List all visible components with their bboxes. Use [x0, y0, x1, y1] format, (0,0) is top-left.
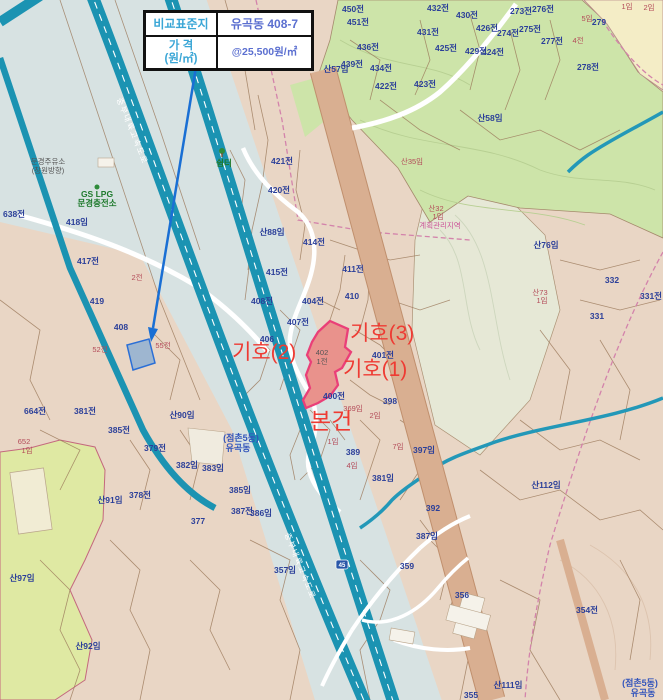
- info-table-value-standard: 유곡동 408-7: [217, 12, 312, 36]
- parcel-label: 산76임: [533, 240, 558, 250]
- parcel-label: 산90임: [169, 410, 194, 420]
- parcel-label: 402: [316, 348, 329, 357]
- parcel-label: 4임: [346, 461, 357, 470]
- parcel-label: 430전: [456, 10, 478, 20]
- parcel-label: 쉼터: [216, 158, 232, 168]
- parcel-label: 638전: [3, 209, 25, 219]
- parcel-label: 423전: [414, 79, 436, 89]
- parcel-label: 389: [346, 447, 360, 457]
- parcel-label: 386임: [250, 508, 272, 518]
- info-table-label-standard: 비교표준지: [145, 12, 217, 36]
- parcel-label: 387임: [416, 531, 438, 541]
- parcel-label: 400전: [323, 391, 345, 401]
- parcel-label: 382임: [176, 460, 198, 470]
- parcel-label: 7임: [392, 442, 403, 451]
- parcel-label: 55전: [155, 340, 170, 350]
- parcel-label: 381전: [74, 406, 96, 416]
- parcel-label: 408전: [251, 296, 273, 306]
- parcel-label: 414전: [303, 237, 325, 247]
- parcel-label: 451전: [347, 17, 369, 27]
- parcel-label: 1임: [432, 212, 443, 221]
- parcel-label: 450전: [342, 4, 364, 14]
- parcel-label: 381임: [372, 473, 394, 483]
- parcel-label: 계획관리지역: [419, 220, 460, 230]
- parcel-label: 419: [90, 296, 104, 306]
- parcel-label: 417전: [77, 256, 99, 266]
- parcel-label: 436전: [357, 42, 379, 52]
- parcel-label: 1임: [536, 296, 547, 305]
- parcel-label: 산35임: [401, 156, 423, 166]
- parcel-label: 2전: [131, 272, 142, 282]
- svg-text:45: 45: [339, 563, 346, 569]
- parcel-label: 1전: [316, 356, 327, 366]
- parcel-label: 276전: [532, 4, 554, 14]
- parcel-label: 산112임: [531, 480, 560, 490]
- parcel-label: 385임: [229, 485, 251, 495]
- parcel-label: 383임: [202, 463, 224, 473]
- parcel-label: 431전: [417, 27, 439, 37]
- info-table: 비교표준지 유곡동 408-7 가 격 (원/㎡) @25,500원/㎡: [143, 10, 314, 71]
- parcel-label: 421전: [271, 156, 293, 166]
- parcel-label: (점촌5동): [622, 677, 658, 688]
- price-label-line2: (원/㎡): [165, 53, 198, 65]
- parcel-label: 331전: [640, 291, 662, 301]
- parcel-label: 1임: [327, 437, 338, 446]
- parcel-label: 664전: [24, 406, 46, 416]
- annotation-subject: 본건: [310, 402, 352, 436]
- parcel-label: 434전: [370, 63, 392, 73]
- parcel-label: 산92임: [75, 641, 100, 651]
- parcel-label: 415전: [266, 267, 288, 277]
- parcel-label: (점촌5동): [223, 432, 259, 443]
- parcel-label: 산91임: [97, 495, 122, 505]
- parcel-label: 1임: [621, 2, 632, 11]
- parcel-label: 422전: [375, 81, 397, 91]
- info-table-label-price: 가 격 (원/㎡): [145, 36, 217, 69]
- parcel-label: 408: [114, 322, 128, 332]
- parcel-label: 426전: [476, 23, 498, 33]
- parcel-label: 52전: [92, 344, 107, 354]
- parcel-label: 359: [400, 561, 414, 571]
- parcel-label: 425전: [435, 43, 457, 53]
- parcel-label: 418임: [66, 217, 88, 227]
- parcel-label: 산97임: [9, 573, 34, 583]
- parcel-label: 277전: [541, 36, 563, 46]
- parcel-label: 274전: [497, 28, 519, 38]
- parcel-label: (창원방향): [32, 165, 65, 175]
- parcel-label: 379전: [144, 443, 166, 453]
- parcel-label: 398: [383, 396, 397, 406]
- parcel-label: 355: [464, 690, 478, 700]
- parcel-label: 385전: [108, 425, 130, 435]
- parcel-label: 420전: [268, 185, 290, 195]
- parcel-label: 407전: [287, 317, 309, 327]
- parcel-label: 산58임: [477, 113, 502, 123]
- parcel-label: 432전: [427, 3, 449, 13]
- parcel-label: 278전: [577, 62, 599, 72]
- parcel-label: 356: [455, 590, 469, 600]
- parcel-label: 652: [18, 437, 31, 446]
- parcel-label: 377: [191, 516, 205, 526]
- parcel-label: 331: [590, 311, 604, 321]
- parcel-label: 392: [426, 503, 440, 513]
- price-label-line1: 가 격: [169, 40, 193, 52]
- parcel-label: 410: [345, 291, 359, 301]
- parcel-label: 문경주유소: [31, 156, 66, 166]
- cadastral-map-page: 중부내륙고속도로 중부내륙고속도로 45 450전451전432전431전430…: [0, 0, 663, 700]
- parcel-label: 4전: [572, 35, 583, 45]
- parcel-label: 유곡동: [226, 443, 251, 453]
- parcel-label: 275전: [519, 24, 541, 34]
- parcel-label: 문경충전소: [77, 198, 116, 208]
- parcel-label: 유곡동: [631, 688, 656, 698]
- parcel-label: 411전: [342, 264, 364, 274]
- parcel-label: 산88임: [259, 227, 284, 237]
- parcel-label: 2임: [369, 411, 380, 420]
- parcel-label: 1임: [21, 446, 32, 455]
- annotation-symbol-1: 기호(1): [343, 353, 407, 383]
- info-table-value-price: @25,500원/㎡: [217, 36, 312, 69]
- cadastral-map[interactable]: 중부내륙고속도로 중부내륙고속도로 45 450전451전432전431전430…: [0, 0, 663, 700]
- parcel-label: 5임: [581, 14, 592, 23]
- parcel-label: 332: [605, 275, 619, 285]
- parcel-label: 273전: [510, 6, 532, 16]
- parcel-label: 424전: [482, 47, 504, 57]
- parcel-label: 397임: [413, 445, 435, 455]
- parcel-label: 378전: [129, 490, 151, 500]
- parcel-label: 2임: [643, 3, 654, 12]
- parcel-label: 산111임: [494, 680, 523, 690]
- parcel-label: 279: [592, 17, 606, 27]
- annotation-symbol-2: 기호(2): [232, 336, 296, 366]
- annotation-symbol-3: 기호(3): [350, 317, 414, 347]
- parcel-label: 산57임: [323, 64, 348, 74]
- parcel-label: 357임: [274, 565, 296, 575]
- parcel-label: 354전: [576, 605, 598, 615]
- parcel-label: 404전: [302, 296, 324, 306]
- route-shield: 45: [336, 560, 348, 569]
